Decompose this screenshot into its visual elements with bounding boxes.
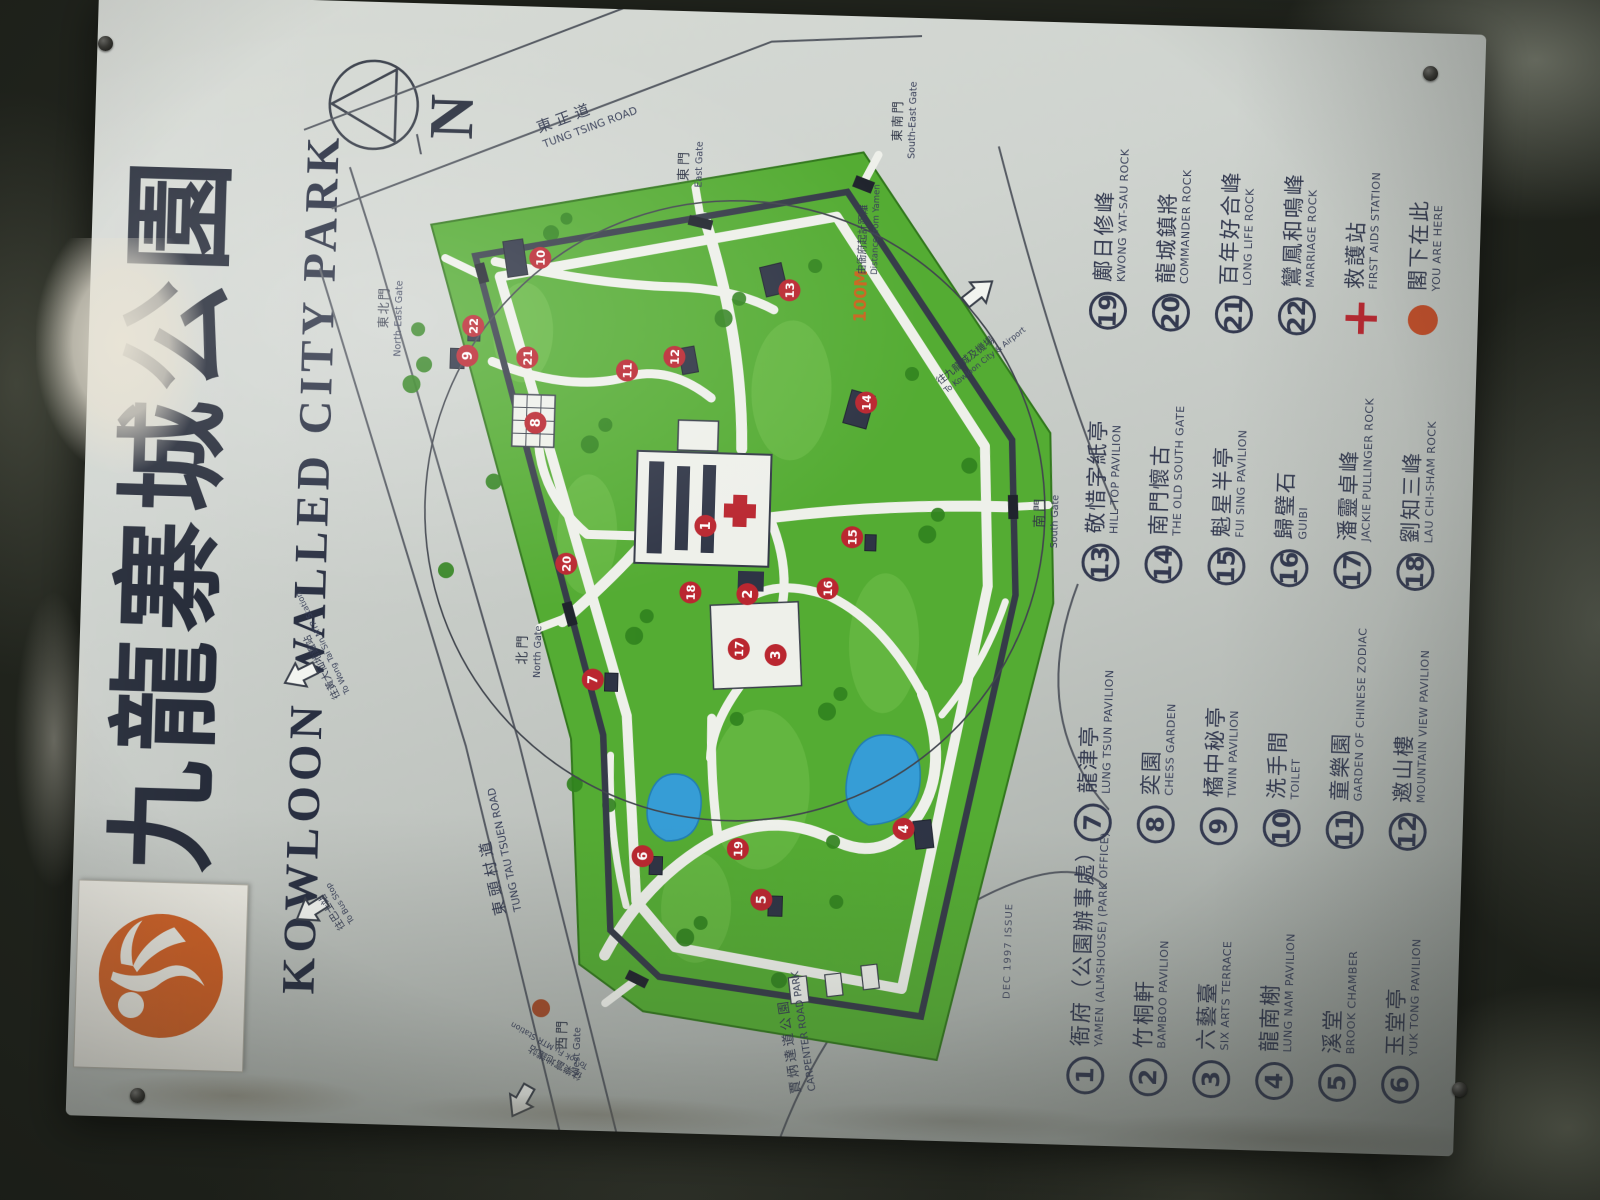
- arrow-wong-tai-sin-label: 往黃大仙地鐵站 To Wong Tai Sin MTR Station: [281, 591, 352, 703]
- legend-name-cn: 歸璧石: [1272, 470, 1298, 540]
- svg-text:12: 12: [668, 349, 682, 365]
- sign-content: 九龍寨城公園 KOWLOON WALLED CITY PARK N DEC 19…: [70, 0, 1483, 1156]
- park-map-sign-board: 九龍寨城公園 KOWLOON WALLED CITY PARK N DEC 19…: [66, 0, 1487, 1156]
- legend: 1 衙府（公園辦事處）YAMEN (ALMSHOUSE) (PARK OFFIC…: [1064, 19, 1482, 1156]
- legend-name-en: YUK TONG PAVILION: [1407, 938, 1424, 1056]
- svg-text:北門: 北門: [515, 632, 531, 664]
- screw-top-left: [98, 36, 113, 51]
- legend-badge: 8: [1136, 805, 1175, 844]
- svg-text:3: 3: [769, 650, 784, 659]
- legend-badge: 20: [1151, 293, 1190, 332]
- legend-name-cn: 閣下在此: [1406, 199, 1433, 292]
- svg-text:6: 6: [636, 851, 651, 860]
- road-label-tung-tau-tsuen: 東頭村道 TUNG TAU TSUEN ROAD: [465, 787, 524, 919]
- legend-name-en: BAMBOO PAVILION: [1155, 940, 1172, 1049]
- screw-top-right: [1423, 66, 1438, 81]
- svg-text:13: 13: [783, 282, 797, 298]
- legend-name-en: JACKIE PULLINGER ROCK: [1359, 398, 1377, 542]
- legend-name-cn: 橘中秘亭: [1202, 705, 1229, 798]
- legend-badge: 7: [1073, 803, 1112, 842]
- legend-name-en: COMMANDER ROCK: [1178, 169, 1195, 284]
- legend-badge: 14: [1144, 545, 1183, 584]
- svg-text:North Gate: North Gate: [532, 625, 545, 678]
- legend-name-en: CHESS GARDEN: [1163, 703, 1179, 796]
- legend-badge: +: [1340, 299, 1379, 338]
- svg-text:8: 8: [529, 418, 544, 427]
- legend-name-cn: 六藝臺: [1194, 940, 1221, 1050]
- legend-entry: 2 竹桐軒BAMBOO PAVILION: [1129, 844, 1199, 1098]
- legend-badge: 18: [1396, 552, 1435, 591]
- legend-entry: 7 龍津亭LUNG TSUN PAVILION: [1073, 589, 1143, 843]
- svg-text:東門: 東門: [676, 149, 693, 181]
- legend-badge: 4: [1255, 1061, 1294, 1100]
- legend-name-en: LUNG NAM PAVILION: [1281, 933, 1298, 1053]
- svg-text:14: 14: [859, 394, 873, 410]
- legend-name-cn: 龍城鎮將: [1154, 169, 1182, 284]
- legend-name-en: GUIBI: [1296, 470, 1312, 539]
- legend-badge: 15: [1207, 547, 1246, 586]
- legend-name-en: LAU CHI-SHAM ROCK: [1422, 421, 1439, 544]
- photo-of-park-map-sign: 九龍寨城公園 KOWLOON WALLED CITY PARK N DEC 19…: [0, 0, 1600, 1200]
- you-are-here-dot: [532, 999, 551, 1018]
- legend-entry: 18 劉知三峰LAU CHI-SHAM ROCK: [1396, 339, 1466, 593]
- legend-badge: 19: [1088, 291, 1127, 330]
- legend-name-en: LUNG TSUN PAVILION: [1100, 669, 1117, 794]
- legend-name-cn: 龍南榭: [1257, 932, 1285, 1052]
- svg-text:18: 18: [684, 584, 698, 600]
- running-figure-logo-icon: [74, 880, 247, 1071]
- legend-entry: 16 歸璧石GUIBI: [1270, 335, 1340, 589]
- legend-entry: 11 童樂園GARDEN OF CHINESE ZODIAC: [1325, 597, 1395, 851]
- svg-text:16: 16: [821, 580, 835, 596]
- legend-name-cn: 竹桐軒: [1131, 939, 1158, 1048]
- legend-name-cn: 洗手間: [1265, 730, 1291, 800]
- legend-entry: + 救護站FIRST AIDS STATION: [1340, 85, 1410, 339]
- svg-text:South Gate: South Gate: [1049, 495, 1062, 549]
- legend-badge: 21: [1214, 295, 1253, 334]
- legend-name-cn: 溪堂: [1320, 950, 1347, 1054]
- legend-badge: 2: [1129, 1058, 1168, 1097]
- legend-entry: 閣下在此YOU ARE HERE: [1403, 87, 1473, 341]
- svg-text:9: 9: [461, 351, 476, 360]
- svg-text:5: 5: [755, 895, 770, 904]
- svg-text:19: 19: [731, 841, 745, 857]
- svg-text:11: 11: [620, 362, 634, 378]
- legend-column-4: 19 鄺日修峰KWONG YAT-SAU ROCK 20 龍城鎮將COMMAND…: [1088, 77, 1473, 340]
- svg-text:東南門: 東南門: [889, 99, 905, 141]
- legend-name-en: HILL TOP PAVILION: [1108, 419, 1125, 534]
- legend-entry: 12 邀山樓MOUNTAIN VIEW PAVILION: [1388, 598, 1458, 852]
- svg-text:17: 17: [732, 641, 746, 657]
- legend-badge: 13: [1081, 543, 1120, 582]
- legend-name-en: SIX ARTS TERRACE: [1218, 941, 1235, 1051]
- legend-name-en: MARRIAGE ROCK: [1304, 173, 1321, 288]
- legend-column-2: 7 龍津亭LUNG TSUN PAVILION 8 奕園CHESS GARDEN…: [1073, 589, 1458, 852]
- legend-column-1: 1 衙府（公園辦事處）YAMEN (ALMSHOUSE) (PARK OFFIC…: [1066, 842, 1451, 1105]
- legend-name-cn: 百年好合峰: [1217, 170, 1245, 286]
- legend-name-en: FIRST AIDS STATION: [1367, 172, 1384, 290]
- legend-entry: 20 龍城鎮將COMMANDER ROCK: [1151, 79, 1221, 333]
- legend-name-en: TOILET: [1289, 730, 1305, 799]
- legend-column-3: 13 敬惜字紙亭HILL TOP PAVILION 14 南門懷古THE OLD…: [1081, 329, 1466, 592]
- svg-text:21: 21: [521, 349, 535, 365]
- svg-text:10: 10: [534, 250, 548, 266]
- legend-badge: [1407, 305, 1438, 336]
- legend-badge: 6: [1381, 1065, 1420, 1104]
- svg-text:東北門: 東北門: [376, 286, 391, 328]
- svg-text:2: 2: [741, 589, 756, 598]
- legend-name-cn: 玉堂亭: [1383, 938, 1411, 1056]
- legend-name-en: YOU ARE HERE: [1430, 199, 1446, 291]
- svg-text:22: 22: [467, 318, 481, 334]
- svg-text:1: 1: [699, 521, 714, 530]
- legend-name-en: LONG LIFE ROCK: [1241, 171, 1258, 286]
- gate-label-north-east: 東北門North-East Gate: [375, 280, 405, 357]
- legend-entry: 10 洗手間TOILET: [1262, 595, 1332, 849]
- legend-entry: 1 衙府（公園辦事處）YAMEN (ALMSHOUSE) (PARK OFFIC…: [1066, 842, 1136, 1096]
- legend-entry: 19 鄺日修峰KWONG YAT-SAU ROCK: [1088, 77, 1158, 331]
- legend-entry: 3 六藝臺SIX ARTS TERRACE: [1192, 846, 1262, 1100]
- legend-name-cn: 救護站: [1343, 171, 1371, 289]
- legend-badge: 1: [1066, 1056, 1105, 1095]
- legend-name-en: TWIN PAVILION: [1226, 705, 1242, 797]
- legend-badge: 22: [1277, 297, 1316, 336]
- legend-name-en: BROOK CHAMBER: [1344, 951, 1361, 1055]
- svg-text:7: 7: [586, 675, 601, 684]
- gate-label-south-east: 東南門South-East Gate: [888, 81, 919, 159]
- screw-bottom-left: [130, 1088, 145, 1103]
- legend-badge: 17: [1333, 551, 1372, 590]
- legend-entry: 14 南門懷古THE OLD SOUTH GATE: [1144, 331, 1214, 585]
- gate-label-east: 東門East Gate: [675, 140, 705, 187]
- legend-entry: 5 溪堂BROOK CHAMBER: [1318, 849, 1388, 1103]
- legend-name-en: THE OLD SOUTH GATE: [1170, 405, 1188, 536]
- legend-name-cn: 魁星半亭: [1209, 429, 1236, 538]
- legend-entry: 8 奕園CHESS GARDEN: [1136, 591, 1206, 845]
- legend-entry: 21 百年好合峰LONG LIFE ROCK: [1214, 81, 1284, 335]
- svg-text:East Gate: East Gate: [693, 141, 705, 188]
- legend-name-cn: 龍津亭: [1076, 669, 1104, 794]
- lcsd-logo-tile: [73, 879, 249, 1072]
- legend-badge: 9: [1199, 807, 1238, 846]
- legend-entry: 13 敬惜字紙亭HILL TOP PAVILION: [1081, 329, 1151, 583]
- legend-name-cn: 奕園: [1139, 702, 1166, 795]
- legend-badge: 10: [1262, 809, 1301, 848]
- page-title-chinese: 九龍寨城公園: [95, 30, 254, 874]
- legend-entry: 17 潘靈卓峰JACKIE PULLINGER ROCK: [1333, 337, 1403, 591]
- scale-value: 100M: [851, 270, 873, 323]
- road-label-tung-tsing: 東正道 TUNG TSING ROAD: [533, 85, 639, 151]
- svg-text:20: 20: [560, 556, 574, 572]
- legend-badge: 12: [1388, 812, 1427, 851]
- arrow-lok-fu-icon: [501, 1080, 540, 1122]
- gate-label-north: 北門North Gate: [515, 625, 545, 678]
- legend-badge: 5: [1318, 1063, 1357, 1102]
- svg-text:南門: 南門: [1032, 496, 1049, 528]
- svg-text:4: 4: [897, 824, 912, 833]
- svg-text:South-East Gate: South-East Gate: [906, 81, 919, 159]
- legend-name-cn: 敬惜字紙亭: [1083, 418, 1111, 534]
- legend-entry: 6 玉堂亭YUK TONG PAVILION: [1381, 851, 1451, 1105]
- legend-name-cn: 劉知三峰: [1398, 420, 1426, 543]
- legend-name-en: FUI SING PAVILION: [1233, 429, 1250, 538]
- legend-badge: 3: [1192, 1060, 1231, 1099]
- legend-name-cn: 鸞鳳和鳴峰: [1280, 172, 1308, 288]
- screw-bottom-right: [1452, 1082, 1467, 1097]
- svg-text:North-East Gate: North-East Gate: [392, 280, 405, 357]
- legend-name-en: KWONG YAT-SAU ROCK: [1115, 149, 1133, 283]
- legend-entry: 15 魁星半亭FUI SING PAVILION: [1207, 333, 1277, 587]
- legend-badge: 16: [1270, 549, 1309, 588]
- legend-entry: 9 橘中秘亭TWIN PAVILION: [1199, 593, 1269, 847]
- legend-badge: 11: [1325, 810, 1364, 849]
- legend-entry: 4 龍南榭LUNG NAM PAVILION: [1255, 848, 1325, 1102]
- svg-text:15: 15: [845, 529, 859, 545]
